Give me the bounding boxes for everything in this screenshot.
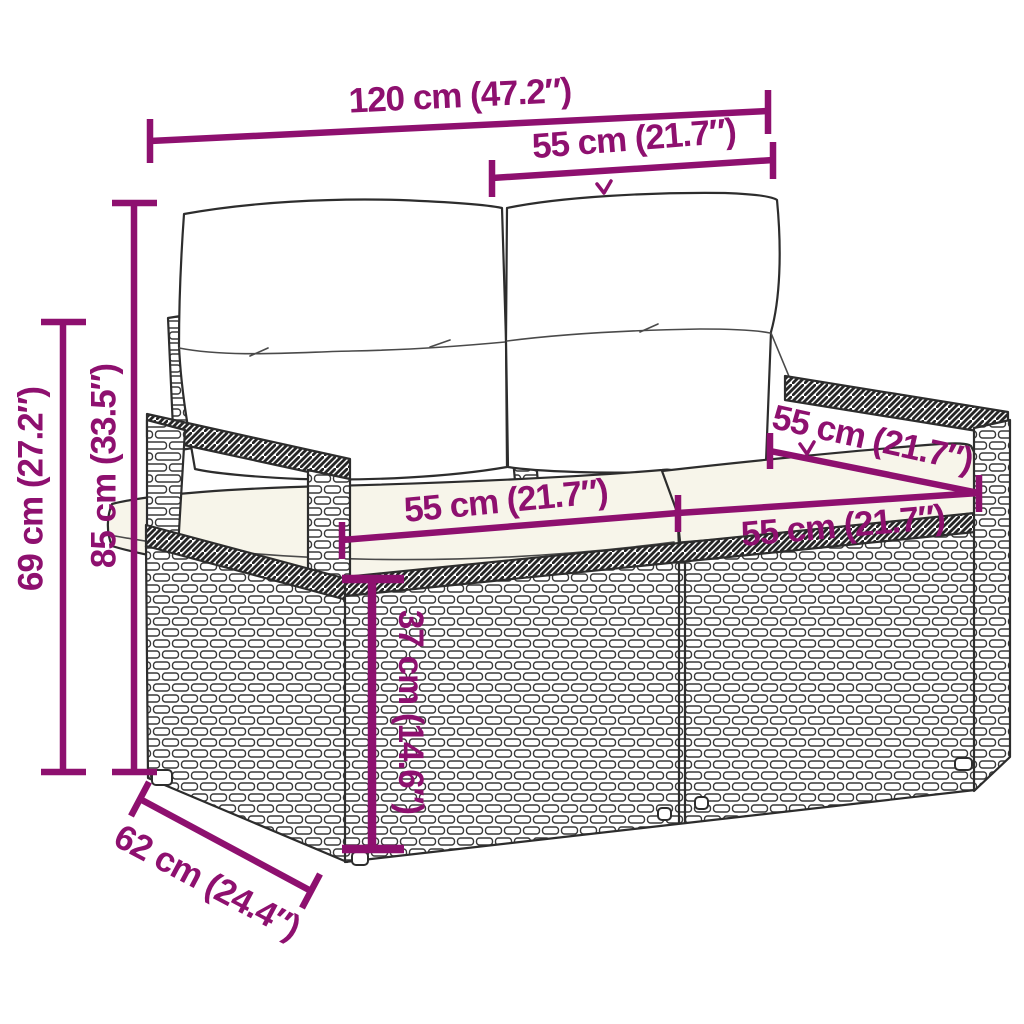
left-side-panel <box>146 525 347 862</box>
foot <box>352 852 368 865</box>
dim-armrest-height: 69 cm (27.2″) <box>11 322 86 772</box>
dim-total-height-label: 85 cm (33.5″) <box>84 364 123 568</box>
foot <box>955 758 972 770</box>
left-side-wicker-panel <box>146 546 347 862</box>
dim-armrest-height-label: 69 cm (27.2″) <box>11 387 50 591</box>
dim-seat-height-label: 37 cm (14.6″) <box>391 610 430 814</box>
foot <box>658 808 671 820</box>
dim-total-width-label: 120 cm (47.2″) <box>348 71 572 121</box>
dimension-diagram: 120 cm (47.2″) 55 cm (21.7″) 85 cm (33.5… <box>0 0 1024 1024</box>
foot <box>695 797 708 809</box>
caret-mark <box>597 181 611 193</box>
back-cushion-right <box>506 193 793 473</box>
sofa-dimension-drawing: 120 cm (47.2″) 55 cm (21.7″) 85 cm (33.5… <box>0 0 1024 1024</box>
